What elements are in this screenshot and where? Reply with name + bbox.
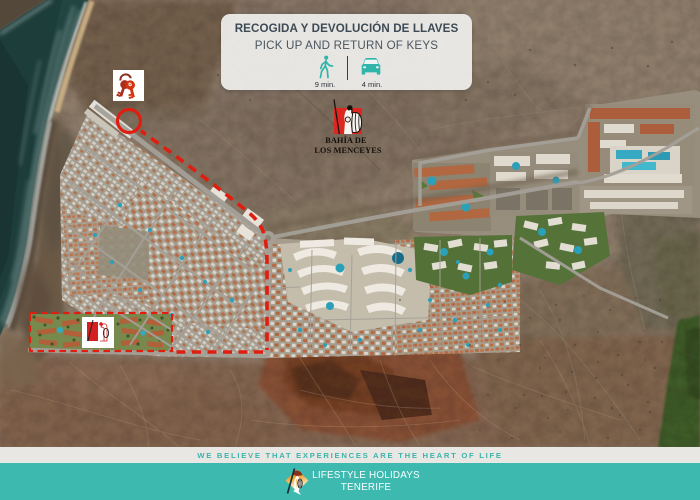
svg-text:BAHÍA DE: BAHÍA DE [325,135,367,145]
svg-text:LOS MENCEYES: LOS MENCEYES [314,146,381,155]
